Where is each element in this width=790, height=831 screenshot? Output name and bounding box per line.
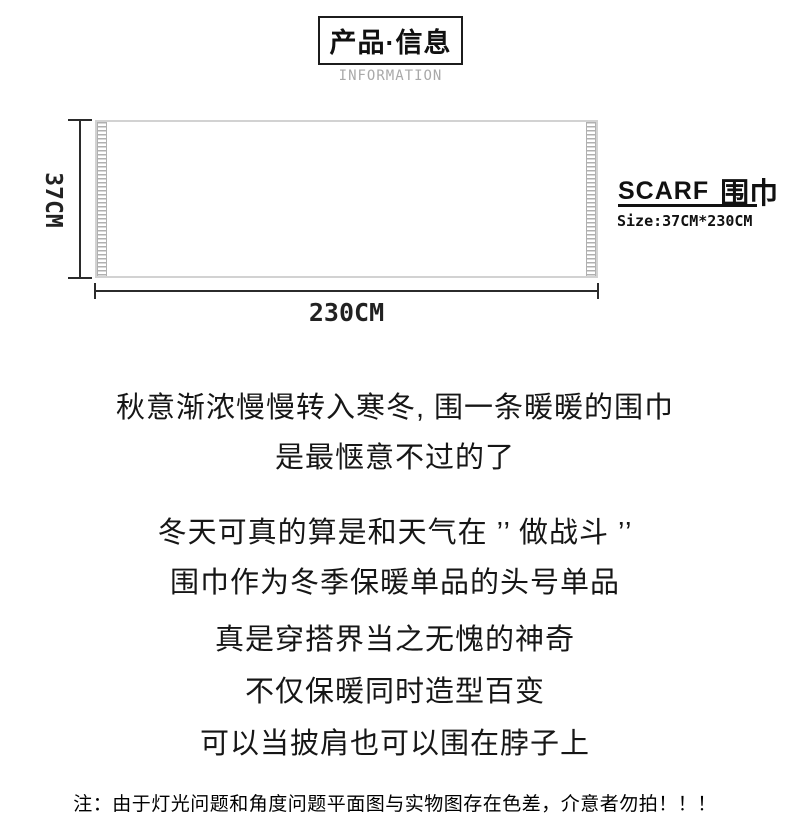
product-info-page: 产品·信息 INFORMATION 37CM 230CM SCARF 围巾 Si… — [0, 0, 790, 831]
page-subtitle: INFORMATION — [318, 68, 463, 84]
size-label: Size:37CM*230CM — [617, 212, 752, 230]
product-label-underline — [618, 204, 757, 207]
description-line-5: 真是穿搭界当之无愧的神奇 — [0, 622, 790, 658]
description-line-7: 可以当披肩也可以围在脖子上 — [0, 726, 790, 762]
description-line-3: 冬天可真的算是和天气在 ’’ 做战斗 ’’ — [0, 515, 790, 551]
description-line-1: 秋意渐浓慢慢转入寒冬, 围一条暖暖的围巾 — [0, 390, 790, 426]
height-dimension-line — [79, 120, 81, 278]
page-title: 产品·信息 — [330, 21, 452, 60]
disclaimer-note: 注：由于灯光问题和角度问题平面图与实物图存在色差，介意者勿拍！！！ — [0, 789, 790, 816]
scarf-illustration — [95, 120, 598, 278]
product-name-en: SCARF — [618, 177, 709, 206]
scarf-fringe-left — [97, 122, 107, 276]
width-dimension-label: 230CM — [95, 298, 598, 327]
width-dimension-cap-right — [597, 283, 599, 299]
height-dimension-cap-top — [68, 119, 92, 121]
description-line-6: 不仅保暖同时造型百变 — [0, 674, 790, 710]
scarf-fringe-right — [586, 122, 596, 276]
height-dimension-cap-bottom — [68, 277, 92, 279]
width-dimension-cap-left — [94, 283, 96, 299]
width-dimension-line — [95, 290, 598, 292]
height-dimension-label: 37CM — [40, 169, 66, 231]
description-line-4: 围巾作为冬季保暖单品的头号单品 — [0, 565, 790, 601]
description-line-2: 是最惬意不过的了 — [0, 440, 790, 476]
title-box: 产品·信息 — [318, 16, 463, 65]
